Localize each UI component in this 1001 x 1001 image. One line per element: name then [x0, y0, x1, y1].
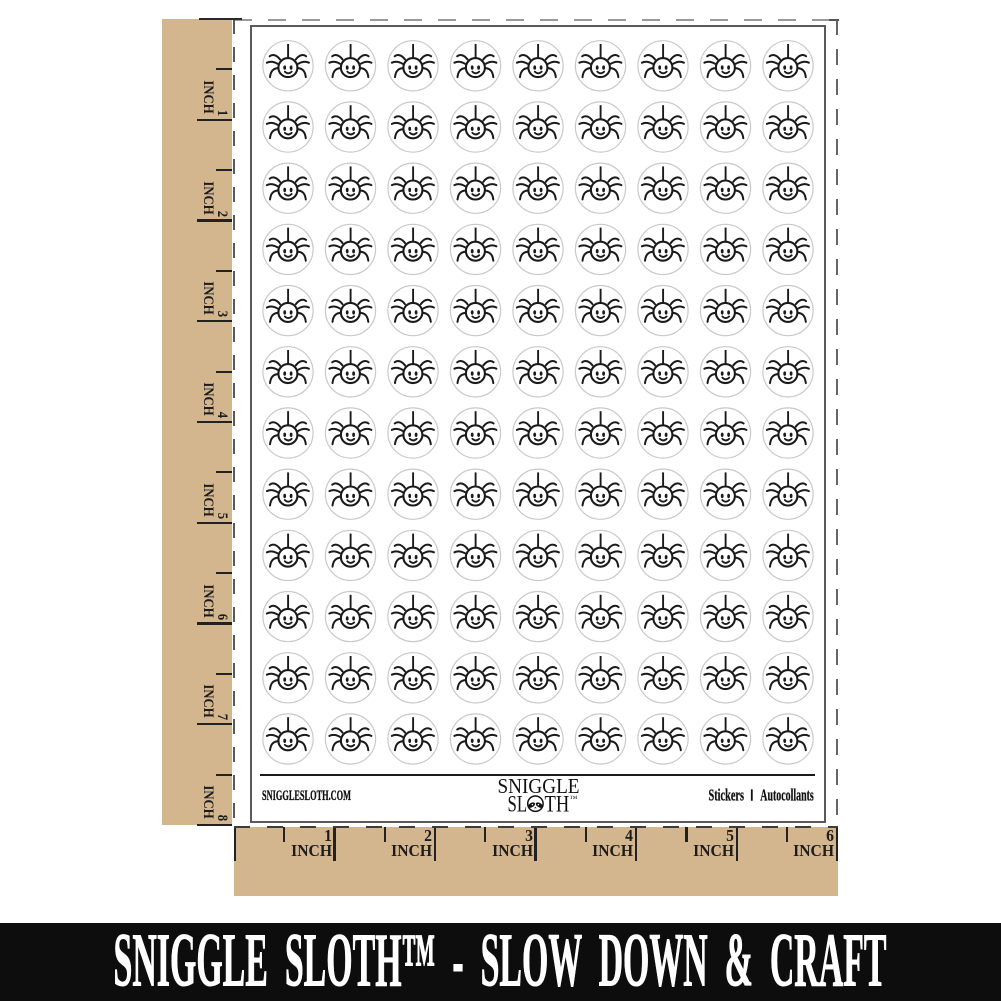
svg-text:Autocollants: Autocollants — [760, 785, 814, 804]
svg-text:™: ™ — [570, 794, 578, 803]
svg-text:SL: SL — [508, 792, 528, 818]
svg-text:TH: TH — [545, 792, 570, 818]
svg-text:Stickers: Stickers — [709, 785, 745, 804]
svg-text:SNIGGLE SLOTH™ - SLOW DOWN & C: SNIGGLE SLOTH™ - SLOW DOWN & CRAFT — [114, 923, 887, 1001]
svg-text:SNIGGLESLOTH.COM: SNIGGLESLOTH.COM — [262, 788, 351, 804]
